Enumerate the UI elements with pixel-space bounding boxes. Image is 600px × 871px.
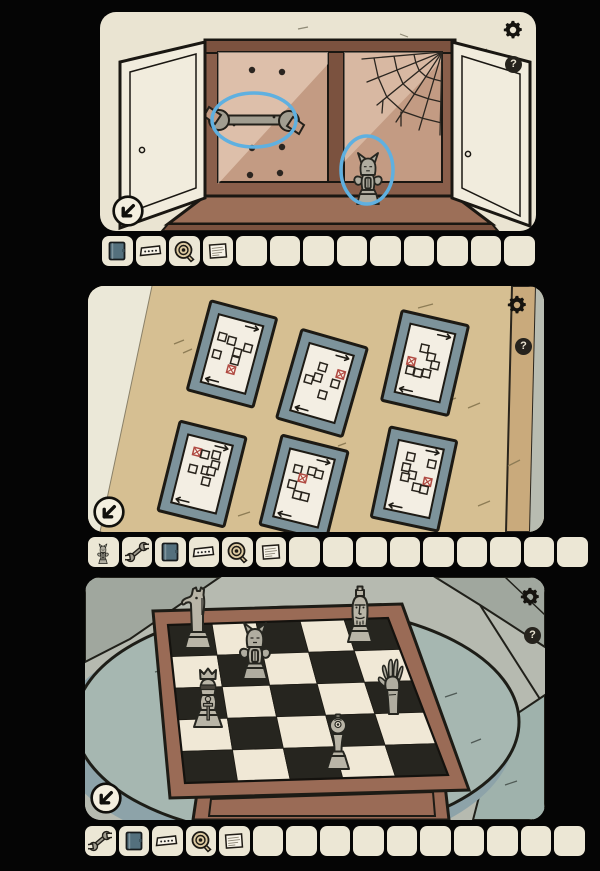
pattern-square [318, 390, 327, 399]
inventory-item-book[interactable] [102, 236, 133, 266]
pattern-square [330, 379, 339, 388]
tape-icon [189, 829, 213, 853]
inventory-item-wrench[interactable] [85, 826, 116, 856]
inventory-slot-empty [437, 236, 468, 266]
board-square-r1c2[interactable] [263, 652, 317, 685]
left-door-handle [139, 147, 144, 152]
inventory-slot-empty [356, 537, 387, 567]
inventory-slot-empty [457, 537, 488, 567]
board-square-r4c1[interactable] [232, 748, 290, 781]
panel-chessboard: ? [85, 577, 600, 857]
pattern-square [426, 353, 435, 362]
inventory-item-tape[interactable] [169, 236, 200, 266]
scene-chessboard: ? [85, 577, 545, 820]
panel-pattern-frames: ? [88, 286, 600, 567]
wrench-icon [125, 540, 149, 564]
pattern-square [243, 343, 252, 352]
help-icon[interactable]: ? [524, 627, 541, 644]
pattern-square [427, 460, 436, 469]
inventory-slot-empty [253, 826, 284, 856]
note-icon [259, 540, 283, 564]
chess-art [85, 577, 545, 820]
strip-icon [192, 540, 216, 564]
tape-icon [225, 540, 249, 564]
inventory-slot-empty [557, 537, 588, 567]
cabinet [162, 40, 498, 231]
strip-icon [139, 239, 163, 263]
book-icon [122, 829, 146, 853]
inventory-item-note[interactable] [203, 236, 234, 266]
board-square-r3c1[interactable] [227, 717, 283, 750]
inventory-slot-empty [370, 236, 401, 266]
inventory-slot-empty [454, 826, 485, 856]
inventory-item-book[interactable] [155, 537, 186, 567]
book-icon [105, 239, 129, 263]
pattern-square [422, 369, 431, 378]
inventory-bar [88, 537, 588, 567]
pattern-square [313, 373, 322, 382]
cabinet-art [100, 12, 536, 231]
inventory-slot-empty [423, 537, 454, 567]
gargoyle-icon [91, 540, 115, 564]
settings-gear-icon[interactable] [519, 586, 541, 608]
settings-gear-icon[interactable] [506, 294, 528, 316]
pattern-square [207, 467, 216, 476]
navigate-back-icon[interactable] [111, 194, 145, 228]
inventory-bar [102, 236, 535, 266]
inventory-slot-empty [404, 236, 435, 266]
inventory-item-note[interactable] [256, 537, 287, 567]
scene-cabinet: ? [100, 12, 536, 231]
pattern-square [212, 350, 221, 359]
pattern-square [230, 356, 239, 365]
inventory-item-strip[interactable] [152, 826, 183, 856]
wrench-icon [88, 829, 112, 853]
pattern-square [400, 473, 409, 482]
inventory-slot-empty [270, 236, 301, 266]
navigate-back-icon[interactable] [92, 495, 126, 529]
note-icon [206, 239, 230, 263]
pattern-square [212, 451, 221, 460]
inventory-slot-empty [521, 826, 552, 856]
inventory-item-strip[interactable] [136, 236, 167, 266]
pattern-square [200, 450, 209, 459]
inventory-item-tape[interactable] [222, 537, 253, 567]
pattern-square [201, 477, 210, 486]
strip-icon [155, 829, 179, 853]
inventory-slot-empty [289, 537, 320, 567]
right-door-handle [465, 151, 470, 156]
game-screens: ? ? [0, 0, 600, 871]
pattern-square [304, 374, 313, 383]
frames-art [88, 286, 544, 532]
pattern-square [430, 361, 439, 370]
inventory-slot-empty [286, 826, 317, 856]
settings-gear-icon[interactable] [502, 19, 524, 41]
inventory-slot-empty [554, 826, 585, 856]
scene-pattern-frames: ? [88, 286, 544, 532]
inventory-slot-empty [337, 236, 368, 266]
note-icon [222, 829, 246, 853]
inventory-slot-empty [353, 826, 384, 856]
pattern-square [218, 332, 227, 341]
inventory-slot-empty [236, 236, 267, 266]
help-icon[interactable]: ? [505, 56, 522, 73]
board-square-r4c0[interactable] [182, 750, 238, 783]
book-icon [158, 540, 182, 564]
pattern-square [314, 470, 323, 479]
inventory-slot-empty [387, 826, 418, 856]
pattern-square [406, 452, 415, 461]
pattern-square [288, 480, 297, 489]
inventory-slot-empty [390, 537, 421, 567]
pattern-square [227, 336, 236, 345]
board-square-r2c2[interactable] [270, 684, 326, 717]
inventory-bar [85, 826, 585, 856]
board-square-r3c2[interactable] [277, 715, 335, 748]
board-square-r2c1[interactable] [222, 685, 276, 718]
inventory-item-book[interactable] [119, 826, 150, 856]
inventory-slot-empty [420, 826, 451, 856]
inventory-slot-empty [524, 537, 555, 567]
help-icon[interactable]: ? [515, 338, 532, 355]
panel-cabinet: ? [100, 12, 536, 268]
tape-icon [172, 239, 196, 263]
inventory-slot-empty [487, 826, 518, 856]
inventory-slot-empty [471, 236, 502, 266]
pattern-square [300, 492, 309, 501]
inventory-slot-empty [504, 236, 535, 266]
inventory-slot-empty [320, 826, 351, 856]
inventory-slot-empty [490, 537, 521, 567]
pattern-square [188, 464, 197, 473]
inventory-item-tape[interactable] [186, 826, 217, 856]
navigate-back-icon[interactable] [89, 781, 123, 815]
pattern-square [419, 485, 428, 494]
inventory-item-strip[interactable] [189, 537, 220, 567]
inventory-slot-empty [323, 537, 354, 567]
inventory-item-note[interactable] [219, 826, 250, 856]
pattern-square [293, 465, 302, 474]
inventory-item-wrench[interactable] [122, 537, 153, 567]
pattern-square [420, 344, 429, 353]
inventory-item-gargoyle[interactable] [88, 537, 119, 567]
pattern-square [318, 362, 327, 371]
inventory-slot-empty [303, 236, 334, 266]
